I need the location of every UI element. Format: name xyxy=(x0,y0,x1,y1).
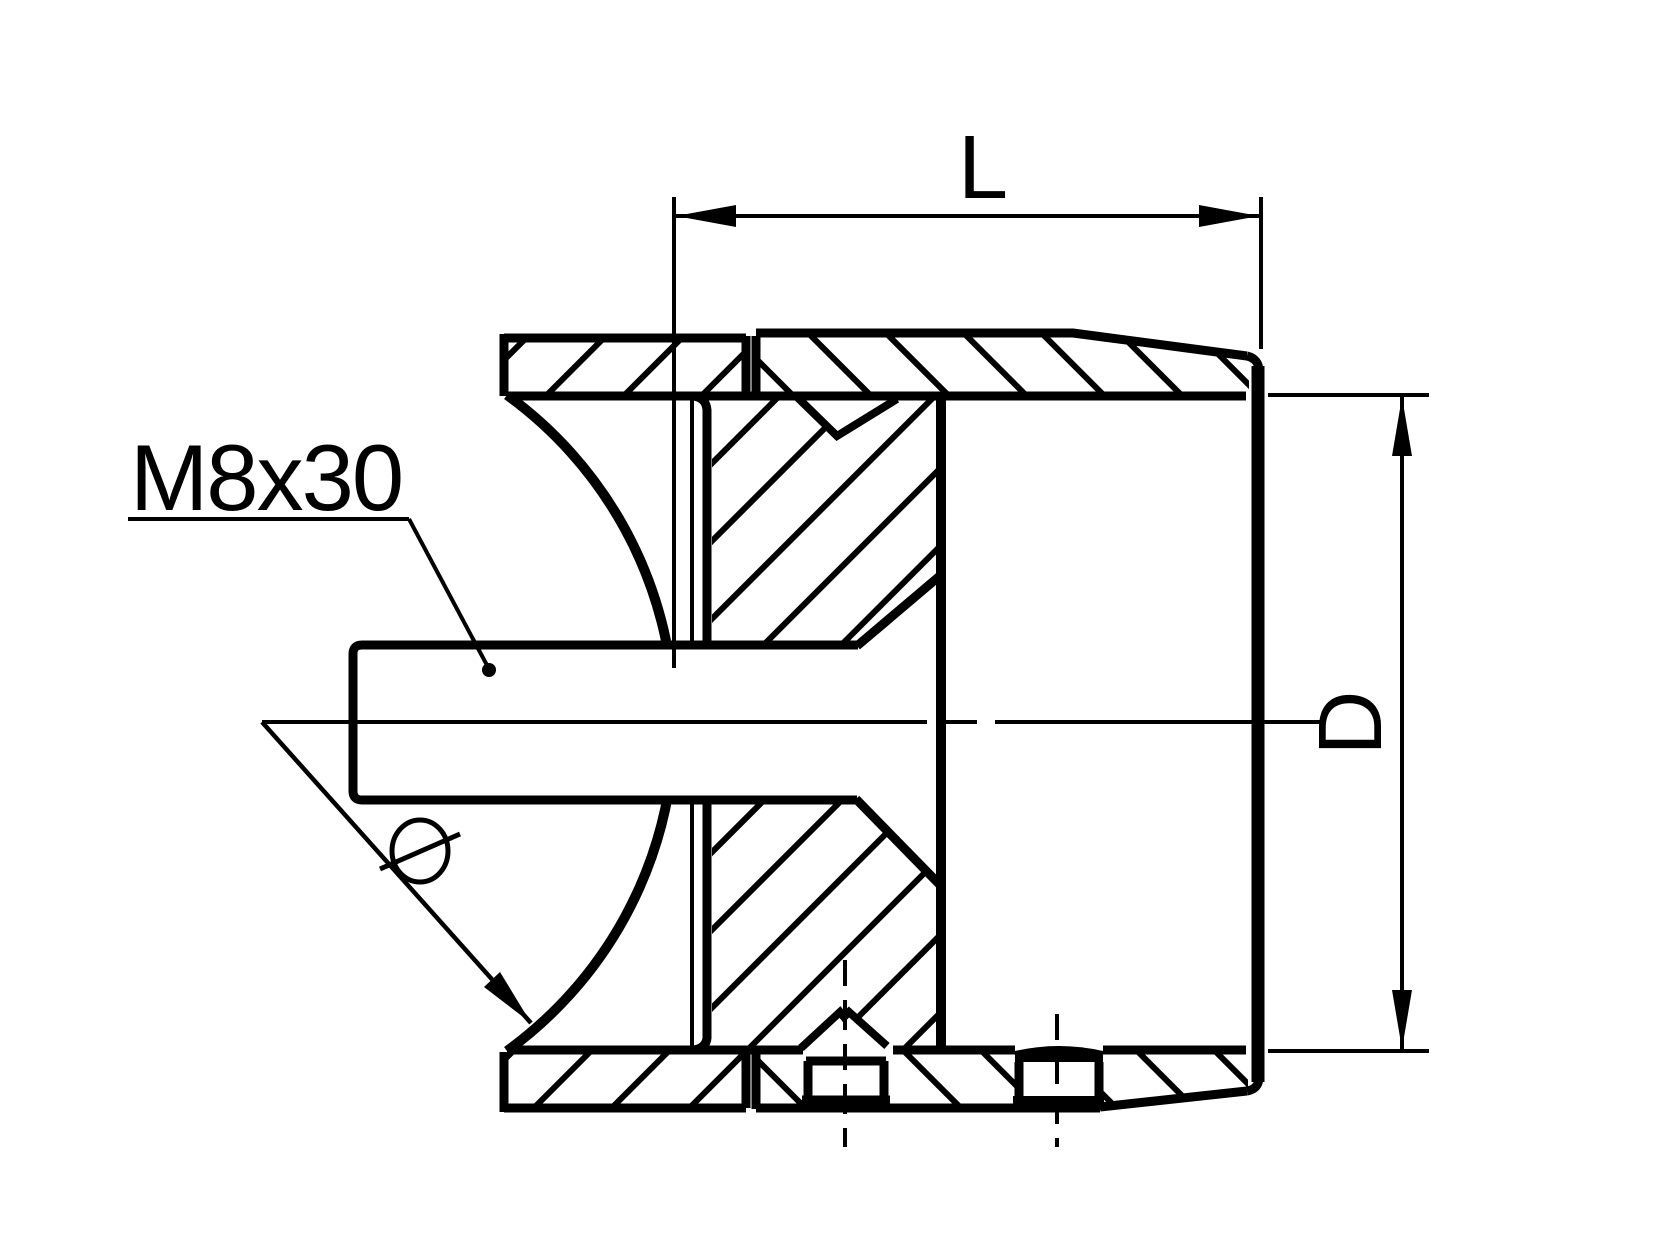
arrowhead-up-icon xyxy=(1392,397,1412,456)
length-dim-label: L xyxy=(958,118,1008,218)
arrowhead-right-icon xyxy=(1199,205,1259,227)
leader-dot-icon xyxy=(482,663,496,677)
arrowhead-left-icon xyxy=(676,205,736,227)
diameter-dim-label: D xyxy=(1301,691,1401,756)
thread-callout: M8x30 xyxy=(128,425,496,677)
thread-callout-label: M8x30 xyxy=(130,425,402,530)
section-drawing: L D M8x30 xyxy=(0,0,1680,1260)
technical-drawing-canvas: L D M8x30 xyxy=(0,0,1680,1260)
arrowhead-down-icon xyxy=(1392,990,1412,1049)
